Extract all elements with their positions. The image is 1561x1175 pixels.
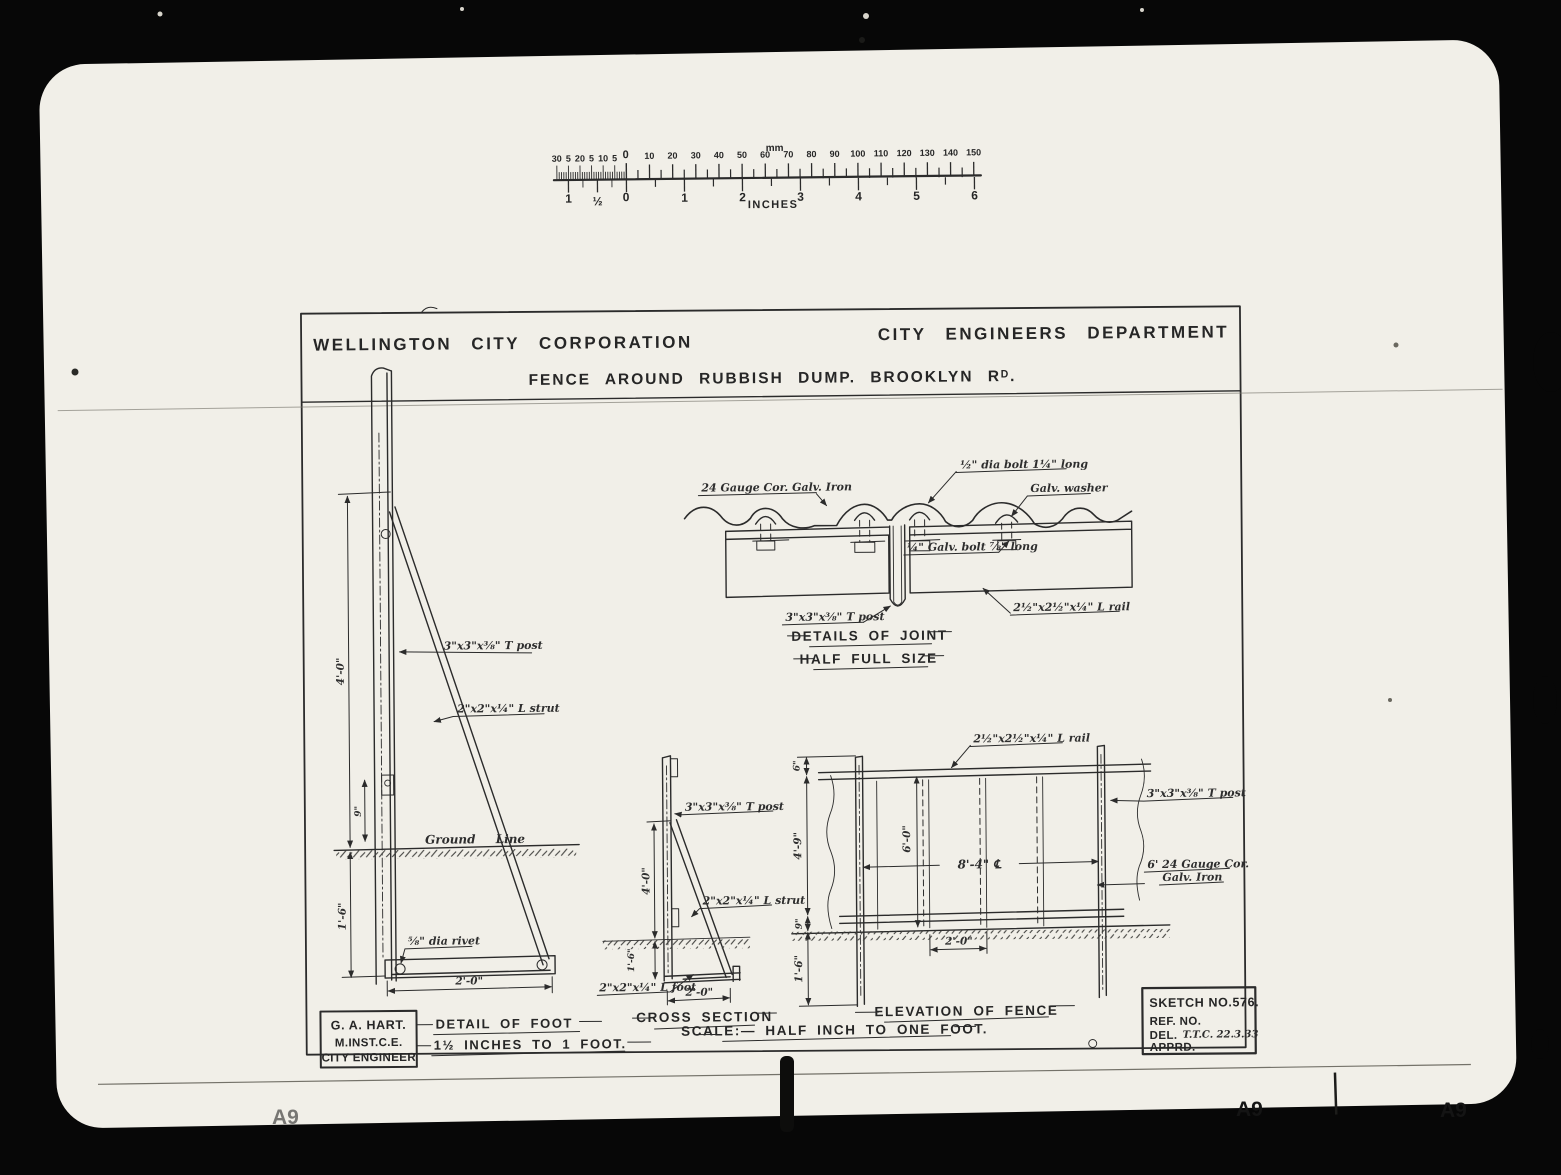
sketch-ref: REF. NO. — [1149, 1016, 1201, 1028]
dim-1ft6: 1'-6" — [627, 948, 637, 972]
label-bolt-top: ½" dia bolt 1¼" long — [960, 458, 1088, 472]
scanned-drawing: A9 A9 A9 mm 0 0 INCHES 10203040506070809… — [0, 0, 1561, 1175]
ruler-tick-label: 20 — [575, 153, 585, 163]
ruler-tick-label: 1 — [681, 191, 688, 205]
speck — [859, 37, 865, 43]
frame-speck — [158, 12, 163, 17]
ruler-tick-label: 100 — [850, 149, 865, 159]
label-rivet: ⅝" dia rivet — [408, 934, 480, 948]
dimension-line — [808, 933, 809, 1005]
ruler-mm-zero: 0 — [623, 149, 629, 161]
edge-blob — [1533, 676, 1557, 724]
label-el-l-rail: 2½"x2½"x¼" L rail — [972, 732, 1090, 746]
dim-9in: 9" — [795, 918, 805, 929]
ruler-tick-label: 5 — [566, 154, 571, 164]
ruler-tick-label: 70 — [783, 149, 793, 159]
frame-speck — [460, 7, 464, 11]
ruler-tick-label: 120 — [897, 148, 912, 158]
ruler-inch-zero: 0 — [623, 190, 630, 204]
ruler-tick-label: 30 — [552, 154, 562, 164]
bleedthrough-mark: A9 — [272, 1106, 299, 1129]
ruler-tick-label: 5 — [612, 153, 617, 163]
ruler-tick-label: 3 — [797, 190, 804, 204]
ruler-tick-label: 1 — [565, 192, 572, 206]
dim-9in: 9" — [354, 806, 364, 817]
caption-foot-scale: 1½ INCHES TO 1 FOOT. — [434, 1036, 627, 1053]
caption-details-of-joint: DETAILS OF JOINT — [791, 628, 947, 644]
ruler-tick-label: 140 — [943, 148, 958, 158]
ruler-tick-label: 130 — [920, 148, 935, 158]
ruler-inches-unit: INCHES — [748, 199, 799, 211]
ink-blob — [780, 1056, 794, 1132]
caption-detail-of-foot: DETAIL OF FOOT — [435, 1016, 573, 1032]
edge-blob — [1531, 1029, 1549, 1059]
title-company: WELLINGTON CITY CORPORATION — [313, 333, 693, 355]
ruler-tick-label: 6 — [971, 188, 978, 202]
ruler-tick-label: 5 — [589, 153, 594, 163]
label-joint-l-rail: 2½"x2½"x¼" L rail — [1012, 600, 1130, 614]
ruler-tick-label: ½ — [593, 194, 603, 208]
bleedthrough-mark: A9 — [1236, 1098, 1263, 1121]
ruler-tick-label: 90 — [830, 149, 840, 159]
sketch-del-value: T.T.C. 22.3.33 — [1183, 1029, 1259, 1041]
bleedthrough-mark: A9 — [1440, 1099, 1467, 1122]
engineer-title: CITY ENGINEER — [322, 1052, 417, 1065]
label-bolt-mid: ¼" Galv. bolt ⅞" long — [907, 540, 1038, 554]
ruler-tick-label: 50 — [737, 150, 747, 160]
ruler-tick-label: 5 — [913, 189, 920, 203]
speck — [1388, 698, 1392, 702]
label-el-t-post: 3"x3"x⅜" T post — [1147, 786, 1246, 800]
stray-mark — [1335, 1073, 1336, 1115]
dim-4ft: 4'-0" — [640, 867, 652, 895]
title-department: CITY ENGINEERS DEPARTMENT — [878, 322, 1229, 344]
engineer-qualification: M.INST.C.E. — [335, 1037, 403, 1050]
ruler-tick-label: 40 — [714, 150, 724, 160]
ruler-tick-label: 80 — [806, 149, 816, 159]
label-foot-t-post: 3"x3"x⅜" T post — [444, 639, 543, 653]
label-ground-line: Ground Line — [425, 832, 525, 847]
sketch-del: DEL. — [1150, 1030, 1178, 1042]
ruler-tick-label: 10 — [598, 153, 608, 163]
speck — [1394, 343, 1399, 348]
ruler-tick-label: 110 — [874, 148, 889, 158]
caption-half-full-size: HALF FULL SIZE — [800, 651, 938, 667]
engineer-name: G. A. HART. — [331, 1018, 407, 1033]
dim-2ft: 2'-0" — [454, 975, 483, 987]
label-el-iron-1: 6' 24 Gauge Cor. — [1147, 857, 1249, 871]
frame-speck — [863, 13, 869, 19]
ground-hatch — [336, 849, 576, 860]
dim-2ft: 2'-0" — [944, 935, 973, 947]
ruler-tick-label: 20 — [667, 151, 677, 161]
caption-elevation: ELEVATION OF FENCE — [874, 1003, 1058, 1019]
dim-8ft4: 8'-4" ℄ — [957, 857, 1002, 871]
ruler-tick-label: 30 — [691, 150, 701, 160]
ruler-tick-label: 150 — [966, 147, 981, 157]
dim-1ft6: 1'-6" — [337, 903, 349, 931]
sketch-apprd: APPRD. — [1150, 1042, 1196, 1054]
dim-1ft6: 1'-6" — [793, 955, 805, 983]
sketch-number: SKETCH NO.576. — [1149, 995, 1259, 1010]
dim-6in: 6" — [792, 760, 802, 771]
ruler-tick-label: 60 — [760, 150, 770, 160]
label-washer: Galv. washer — [1030, 481, 1109, 495]
label-corrugated-iron: 24 Gauge Cor. Galv. Iron — [700, 480, 852, 494]
ruler-tick-label: 10 — [644, 151, 654, 161]
ground-hatch — [603, 939, 750, 949]
dim-4ft9: 4'-9" — [792, 832, 804, 860]
ruler-tick-label: 2 — [739, 190, 746, 204]
frame-speck — [1140, 8, 1144, 12]
speck — [72, 369, 79, 376]
label-el-iron-2: Galv. Iron — [1162, 870, 1222, 883]
dim-6ft: 6'-0" — [901, 825, 913, 853]
dim-4ft: 4'-0" — [335, 658, 347, 686]
label-joint-t-post: 3"x3"x⅜" T post — [785, 610, 884, 624]
label-cs-l-foot: 2"x2"x¼" L foot — [598, 981, 696, 995]
ruler-tick-label: 4 — [855, 189, 862, 203]
